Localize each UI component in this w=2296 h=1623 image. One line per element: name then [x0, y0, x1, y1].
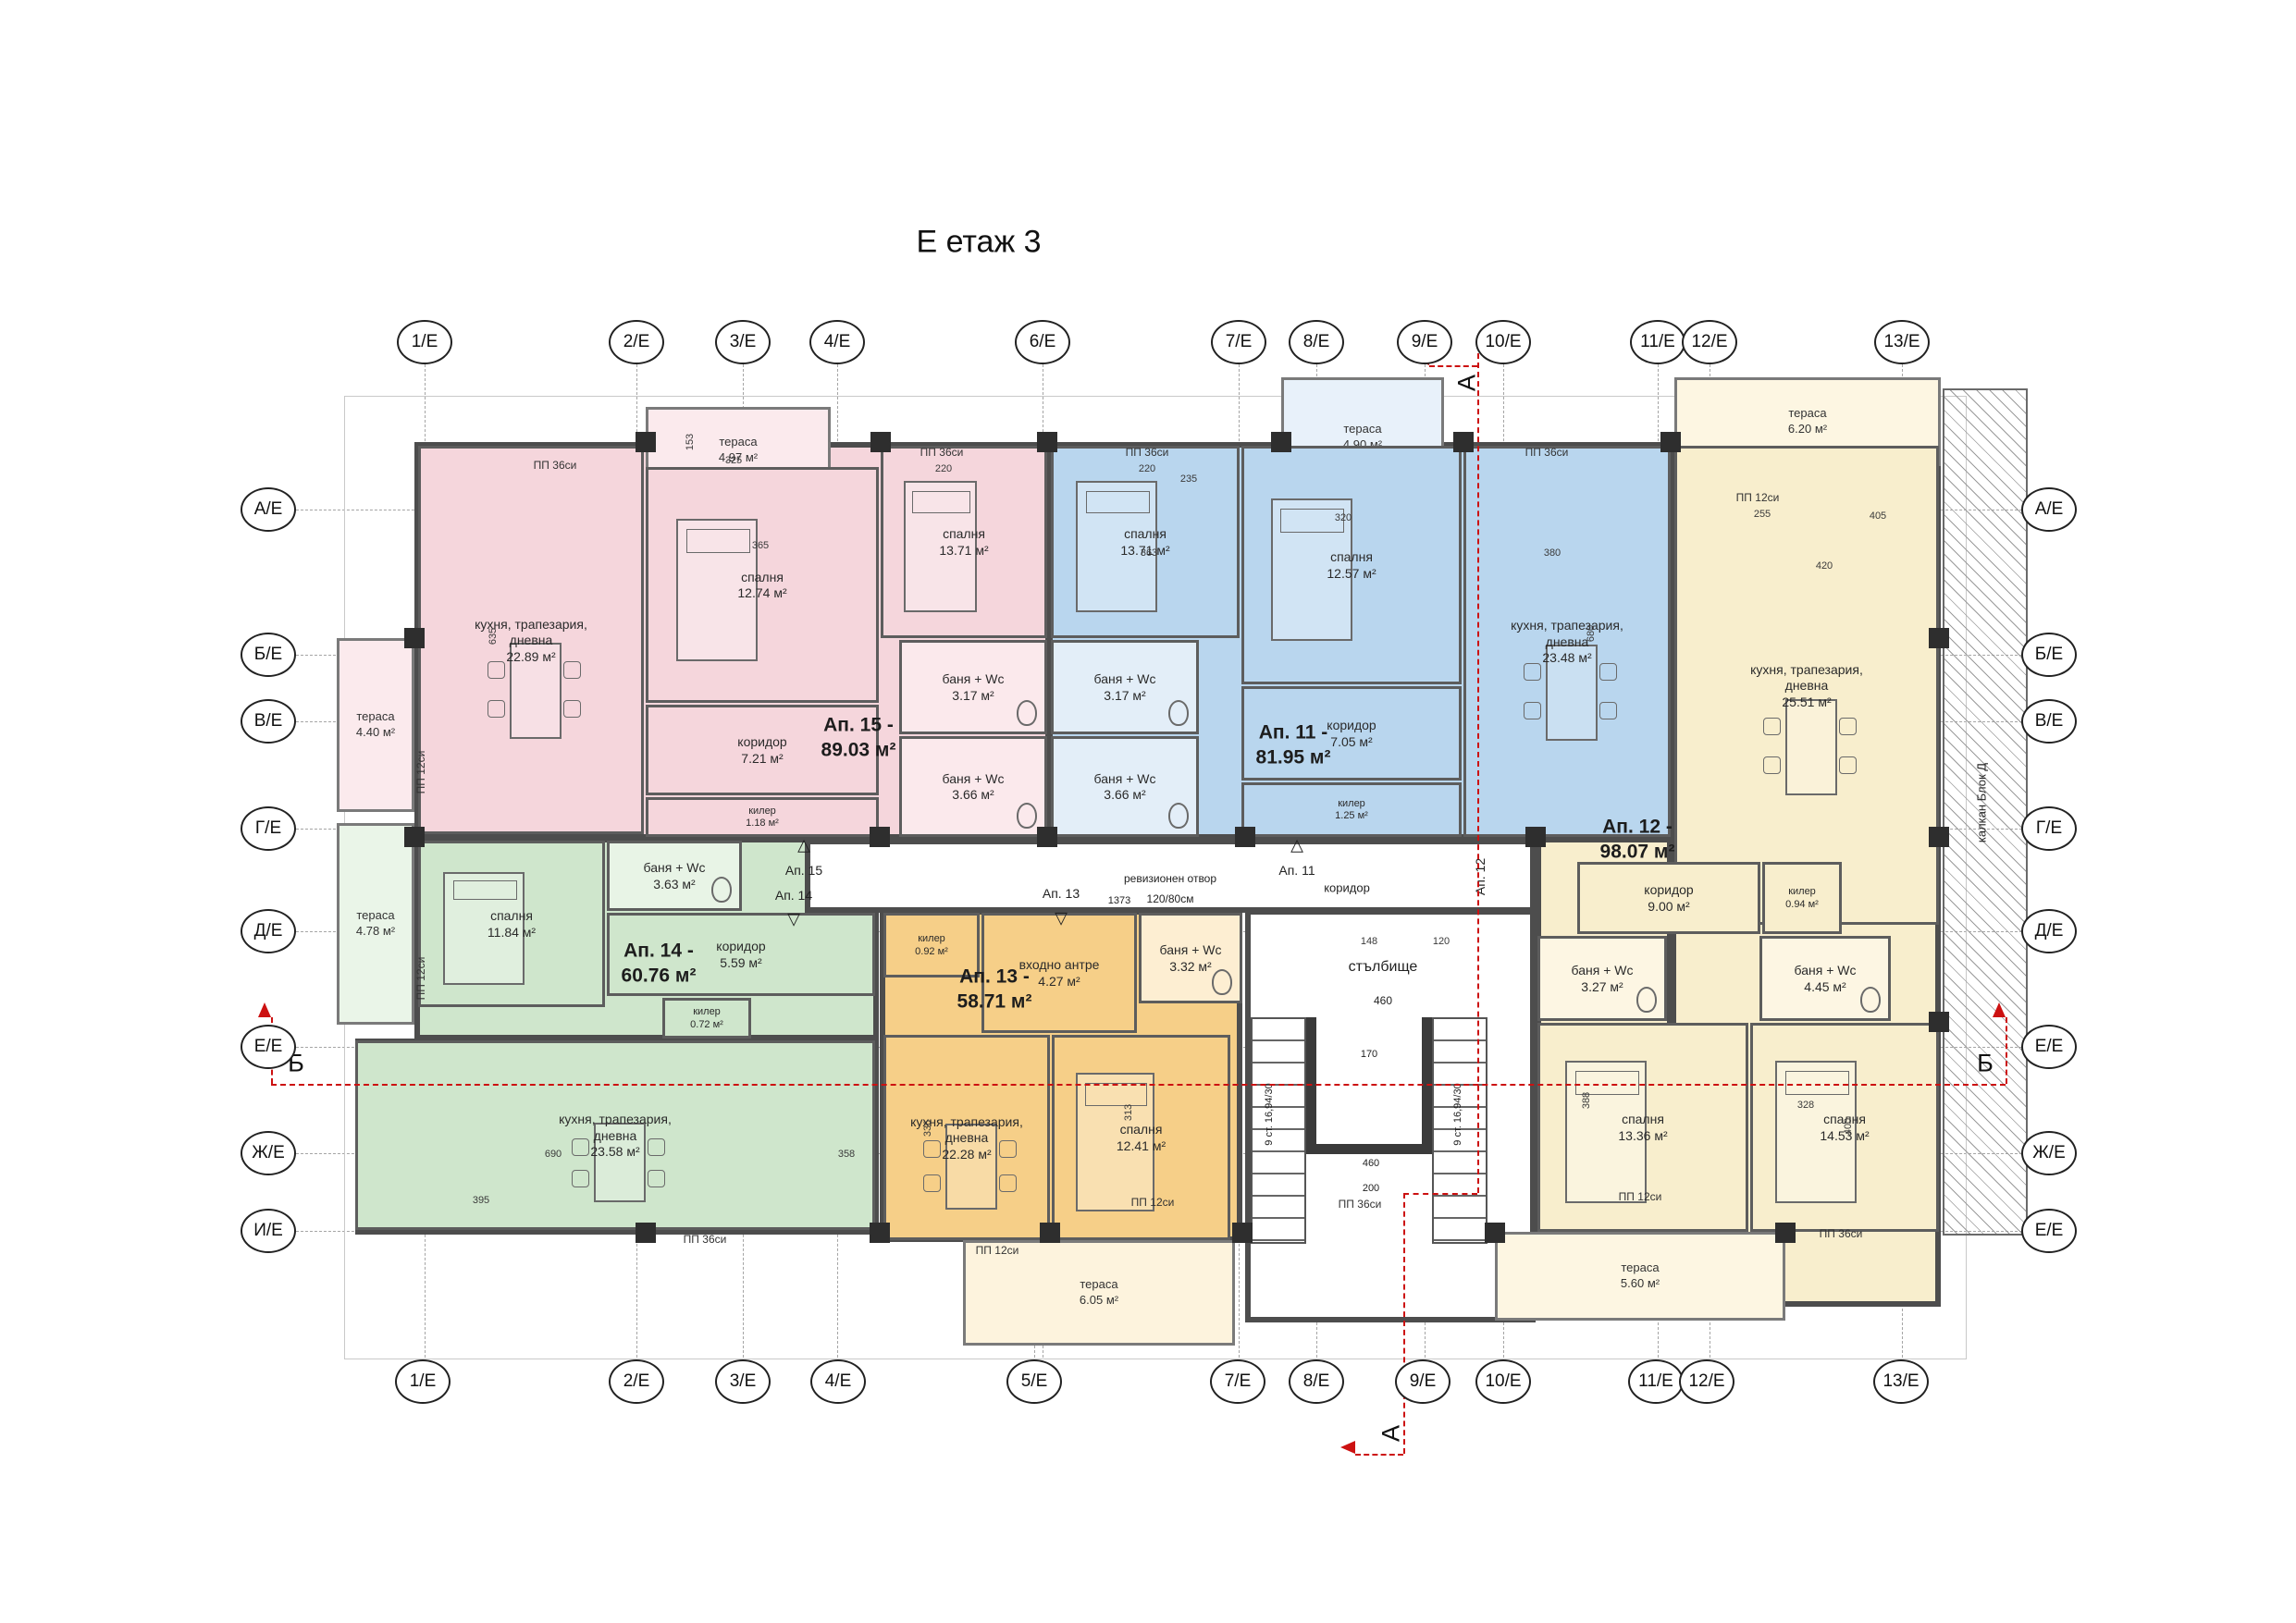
room-name: кухня, трапезария, дневна — [1750, 662, 1863, 695]
room-living: кухня, трапезария, дневна22.89 м² — [418, 446, 644, 834]
section-line — [1477, 353, 1479, 1193]
room-name: спалня — [1622, 1112, 1664, 1128]
axis-bubble-left: Г/Е — [241, 806, 296, 851]
axis-bubble-top: 13/Е — [1874, 320, 1930, 364]
dimension-text: 328 — [1797, 1100, 1814, 1111]
annotation-text: коридор — [1324, 881, 1370, 895]
apartment-number: Ап. 15 - — [821, 713, 896, 738]
annotation-text: Ап. 11 — [1278, 863, 1315, 878]
axis-bubble-bottom: 2/Е — [609, 1359, 664, 1404]
section-arrow — [1993, 1002, 2006, 1017]
dimension-text: 153 — [685, 434, 696, 450]
apartment-label-ap11: Ап. 11 -81.95 м² — [1256, 720, 1331, 771]
room-area: 13.36 м² — [1618, 1128, 1667, 1143]
room-name: баня + Wc — [943, 771, 1005, 788]
room-name: спалня — [943, 526, 985, 543]
axis-bubble-bottom: 11/Е — [1628, 1359, 1684, 1404]
apartment-area: 60.76 м² — [622, 964, 697, 989]
wall-column — [1660, 432, 1681, 452]
wall-column — [1037, 827, 1057, 847]
room-area: 3.17 м² — [952, 688, 994, 703]
room-living: кухня, трапезария, дневна22.28 м² — [883, 1035, 1050, 1240]
terrace-area: 6.05 м² — [1080, 1293, 1118, 1309]
dimension-text: 255 — [1754, 509, 1771, 520]
room-name: баня + Wc — [1094, 671, 1156, 688]
axis-bubble-left: Е/Е — [241, 1025, 296, 1069]
dimension-text: 680 — [1586, 625, 1597, 642]
section-line — [2006, 1017, 2007, 1084]
room-closet: килер1.25 м² — [1241, 782, 1462, 837]
wall-column — [1929, 827, 1949, 847]
window-mark-label: ПП 12си — [414, 957, 427, 1001]
dimension-text: 635 — [488, 628, 499, 645]
axis-bubble-top: 6/Е — [1015, 320, 1070, 364]
room-closet: килер0.94 м² — [1762, 862, 1842, 934]
apartment-label-ap13: Ап. 13 -58.71 м² — [957, 965, 1032, 1015]
room-bedroom: спалня13.71 м² — [881, 446, 1047, 638]
terrace-area: 4.40 м² — [356, 725, 395, 741]
room-name: спалня — [1124, 526, 1167, 543]
room-name: килер — [748, 805, 776, 818]
apartment-area: 89.03 м² — [821, 738, 896, 763]
room-living: кухня, трапезария, дневна23.58 м² — [355, 1040, 875, 1230]
room-name: килер — [1788, 886, 1816, 899]
room-area: 3.17 м² — [1104, 688, 1145, 703]
room-name: коридор — [1644, 882, 1693, 899]
room-name: баня + Wc — [1160, 942, 1222, 959]
section-line — [1403, 1193, 1405, 1454]
section-arrow — [258, 1002, 271, 1017]
dimension-text: 148 — [1361, 936, 1377, 947]
axis-bubble-bottom: 5/Е — [1006, 1359, 1062, 1404]
room-area: 3.63 м² — [653, 877, 695, 891]
room-name: килер — [693, 1006, 721, 1019]
annotation-text: стълбище — [1349, 959, 1418, 976]
section-letter: Б — [1977, 1050, 1994, 1078]
annotation-text: 1373 — [1108, 895, 1130, 906]
axis-bubble-bottom: 8/Е — [1289, 1359, 1344, 1404]
axis-bubble-left: Д/Е — [241, 909, 296, 953]
section-line — [271, 1084, 2006, 1086]
wall-column — [1271, 432, 1291, 452]
section-line — [1403, 1193, 1477, 1195]
axis-bubble-top: 4/Е — [809, 320, 865, 364]
page-title: Е етаж 3 — [916, 225, 1041, 261]
room-area: 11.84 м² — [488, 925, 536, 940]
wall-column — [404, 827, 425, 847]
terrace-label: тераса — [356, 709, 394, 725]
room-area: 1.25 м² — [1335, 810, 1368, 821]
wall-column — [1929, 628, 1949, 648]
annotation-text: 120/80см — [1147, 892, 1194, 905]
dimension-text: 235 — [1180, 473, 1197, 485]
annotation-text: 200 — [1363, 1183, 1379, 1194]
dimension-text: 388 — [1581, 1092, 1592, 1109]
room-bath: баня + Wc3.17 м² — [1051, 640, 1199, 734]
annotation-text: Ап. 15 — [785, 863, 822, 878]
axis-bubble-bottom: 1/Е — [395, 1359, 451, 1404]
terrace-area: 5.60 м² — [1621, 1276, 1660, 1292]
room-name: баня + Wc — [1094, 771, 1156, 788]
dimension-text: 220 — [935, 463, 952, 474]
room-bath: баня + Wc3.27 м² — [1537, 936, 1667, 1021]
dimension-text: 358 — [838, 1149, 855, 1160]
room-name: спалня — [741, 570, 784, 586]
room-bath: баня + Wc3.17 м² — [899, 640, 1047, 734]
apartment-area: 98.07 м² — [1600, 840, 1675, 865]
room-area: 3.66 м² — [952, 787, 994, 802]
dimension-text: 220 — [1139, 463, 1155, 474]
room-area: 1.18 м² — [746, 818, 779, 829]
window-mark-label: ПП 12си — [1619, 1190, 1662, 1203]
dimension-text: 395 — [473, 1195, 489, 1206]
apartment-label-ap12: Ап. 12 -98.07 м² — [1600, 815, 1675, 866]
room-bedroom: спалня12.41 м² — [1052, 1035, 1230, 1240]
terrace: тераса5.60 м² — [1495, 1232, 1785, 1321]
section-letter: А — [1377, 1425, 1406, 1442]
wall-column — [404, 628, 425, 648]
room-bedroom: спалня12.57 м² — [1241, 446, 1462, 684]
room-closet: килер0.72 м² — [662, 998, 751, 1039]
room-bath: баня + Wc3.32 м² — [1139, 913, 1242, 1003]
wall-column — [870, 1223, 890, 1243]
room-name: коридор — [737, 734, 786, 751]
annotation-text: △ — [797, 836, 810, 855]
room-name: баня + Wc — [644, 860, 706, 877]
axis-bubble-left: Ж/Е — [241, 1131, 296, 1175]
window-mark-label: ПП 12си — [1131, 1196, 1175, 1209]
room-area: 12.57 м² — [1327, 566, 1376, 581]
room-bedroom: спалня11.84 м² — [418, 841, 605, 1007]
dimension-text: 420 — [1816, 560, 1833, 572]
terrace-label: тераса — [1621, 1260, 1659, 1276]
window-mark-label: ПП 12си — [1736, 491, 1780, 504]
room-name: баня + Wc — [1795, 963, 1857, 979]
room-closet: килер1.18 м² — [646, 797, 879, 837]
window-mark-label: ПП 36си — [684, 1233, 727, 1246]
dimension-text: 363 — [1141, 547, 1157, 559]
room-hall: коридор9.00 м² — [1577, 862, 1760, 934]
axis-bubble-top: 8/Е — [1289, 320, 1344, 364]
apartment-area: 58.71 м² — [957, 990, 1032, 1014]
axis-bubble-bottom: 12/Е — [1679, 1359, 1734, 1404]
room-area: 3.66 м² — [1104, 787, 1145, 802]
axis-bubble-bottom: 3/Е — [715, 1359, 771, 1404]
terrace: тераса4.40 м² — [337, 638, 414, 812]
apartment-number: Ап. 14 - — [622, 939, 697, 964]
wall-column — [1775, 1223, 1796, 1243]
room-name: коридор — [1327, 718, 1376, 734]
axis-bubble-top: 7/Е — [1211, 320, 1266, 364]
dimension-text: 400 — [1843, 1118, 1854, 1135]
window-mark-label: ПП 36си — [1126, 446, 1169, 459]
dimension-text: 380 — [1544, 547, 1561, 559]
room-name: кухня, трапезария, дневна — [1511, 618, 1623, 650]
apartment-label-ap14: Ап. 14 -60.76 м² — [622, 939, 697, 990]
room-name: баня + Wc — [1572, 963, 1634, 979]
room-area: 12.74 м² — [737, 585, 786, 600]
terrace-label: тераса — [719, 435, 757, 450]
wall-column — [870, 432, 891, 452]
room-name: коридор — [716, 939, 765, 955]
room-area: 7.05 м² — [1330, 734, 1372, 749]
axis-bubble-top: 1/Е — [397, 320, 452, 364]
annotation-text: 9 ст. 16,94/30 — [1264, 1083, 1275, 1145]
room-living: кухня, трапезария, дневна23.48 м² — [1463, 446, 1671, 837]
annotation-text: Ап. 13 — [1043, 886, 1080, 901]
room-area: 23.48 м² — [1542, 650, 1591, 665]
room-name: килер — [918, 933, 945, 946]
section-letter: А — [1453, 375, 1482, 391]
axis-bubble-left: В/Е — [241, 699, 296, 744]
room-area: 0.94 м² — [1785, 899, 1819, 910]
axis-bubble-right: В/Е — [2021, 699, 2077, 744]
window-mark-label: ПП 36си — [1820, 1227, 1863, 1240]
stair-shaft — [1306, 1017, 1432, 1154]
terrace: тераса4.78 м² — [337, 823, 414, 1025]
room-area: 22.89 м² — [506, 649, 555, 664]
wall-column — [1525, 827, 1546, 847]
room-name: баня + Wc — [943, 671, 1005, 688]
apartment-number: Ап. 13 - — [957, 965, 1032, 990]
room-area: 3.32 м² — [1169, 959, 1211, 974]
dimension-text: 365 — [752, 540, 769, 551]
axis-bubble-right: Д/Е — [2021, 909, 2077, 953]
terrace-label: тераса — [1080, 1277, 1117, 1293]
room-name: спалня — [1120, 1122, 1163, 1138]
room-area: 7.21 м² — [741, 751, 783, 766]
annotation-text: 9 ст. 16,94/30 — [1452, 1083, 1463, 1145]
room-living: кухня, трапезария, дневна25.51 м² — [1674, 446, 1939, 925]
dimension-text: 120 — [1433, 936, 1450, 947]
room-bath: баня + Wc3.63 м² — [607, 841, 742, 911]
terrace-label: тераса — [356, 908, 394, 924]
room-area: 13.71 м² — [939, 543, 988, 558]
wall-column — [1929, 1012, 1949, 1032]
axis-bubble-top: 10/Е — [1475, 320, 1531, 364]
terrace-label: тераса — [1788, 406, 1826, 422]
window-mark-label: ПП 36си — [1525, 446, 1569, 459]
terrace-area: 6.20 м² — [1788, 422, 1827, 437]
axis-bubble-bottom: 9/Е — [1395, 1359, 1450, 1404]
axis-bubble-top: 3/Е — [715, 320, 771, 364]
section-arrow — [1340, 1441, 1355, 1454]
room-bath: баня + Wc3.66 м² — [899, 736, 1047, 837]
axis-bubble-right: Ж/Е — [2021, 1131, 2077, 1175]
annotation-text: 460 — [1374, 994, 1392, 1007]
axis-bubble-right: Е/Е — [2021, 1209, 2077, 1253]
terrace-area: 4.78 м² — [356, 924, 395, 940]
dimension-text: 325 — [725, 455, 742, 466]
room-bedroom: спалня12.74 м² — [646, 467, 879, 703]
section-line — [1355, 1454, 1403, 1456]
annotation-text: 460 — [1363, 1158, 1379, 1169]
room-bath: баня + Wc4.45 м² — [1759, 936, 1891, 1021]
dimension-text: 320 — [1335, 512, 1352, 523]
window-mark-label: ПП 12си — [976, 1244, 1019, 1257]
axis-bubble-bottom: 13/Е — [1873, 1359, 1929, 1404]
room-area: 23.58 м² — [590, 1144, 639, 1159]
section-line — [1429, 365, 1477, 367]
axis-bubble-left: И/Е — [241, 1209, 296, 1253]
room-area: 5.59 м² — [720, 955, 761, 970]
wall-column — [1235, 827, 1255, 847]
apartment-number: Ап. 11 - — [1256, 720, 1331, 745]
annotation-text: ▽ — [1055, 909, 1068, 928]
annotation-text: ▽ — [787, 910, 800, 929]
room-area: 3.27 м² — [1581, 979, 1623, 994]
axis-bubble-left: А/Е — [241, 487, 296, 532]
axis-bubble-bottom: 7/Е — [1210, 1359, 1265, 1404]
apartment-number: Ап. 12 - — [1600, 815, 1675, 840]
room-bath: баня + Wc3.66 м² — [1051, 736, 1199, 837]
window-mark-label: ПП 12си — [414, 751, 427, 794]
room-area: 22.28 м² — [942, 1147, 991, 1162]
axis-bubble-bottom: 10/Е — [1475, 1359, 1531, 1404]
apartment-area: 81.95 м² — [1256, 745, 1331, 770]
terrace-label: тераса — [1343, 422, 1381, 437]
floorplan-canvas: Е етаж 3 тераса4.97 м²тераса4.90 м²терас… — [0, 0, 2296, 1623]
annotation-text: Ап. 12 — [1473, 858, 1487, 895]
apartment-label-ap15: Ап. 15 -89.03 м² — [821, 713, 896, 764]
annotation-text: Ап. 14 — [775, 888, 812, 903]
axis-bubble-bottom: 4/Е — [810, 1359, 866, 1404]
room-bedroom: спалня13.71 м² — [1051, 446, 1240, 638]
room-name: спалня — [490, 908, 533, 925]
room-area: 9.00 м² — [1648, 899, 1689, 914]
annotation-text: калкан Блок Д — [1975, 763, 1989, 842]
annotation-text: 170 — [1361, 1049, 1377, 1060]
axis-bubble-right: Г/Е — [2021, 806, 2077, 851]
annotation-text: ревизионен отвор — [1124, 872, 1216, 885]
room-area: 4.45 м² — [1804, 979, 1845, 994]
wall-column — [1453, 432, 1474, 452]
room-name: килер — [1338, 798, 1365, 811]
window-mark-label: ПП 36си — [1339, 1198, 1382, 1211]
room-area: 25.51 м² — [1782, 695, 1831, 709]
wall-column — [1037, 432, 1057, 452]
wall-column — [636, 1223, 656, 1243]
axis-bubble-top: 11/Е — [1630, 320, 1685, 364]
annotation-text: △ — [1290, 836, 1303, 855]
axis-bubble-top: 12/Е — [1682, 320, 1737, 364]
axis-bubble-right: Б/Е — [2021, 633, 2077, 677]
wall-column — [636, 432, 656, 452]
wall-column — [870, 827, 890, 847]
room-area: 4.27 м² — [1038, 974, 1080, 989]
axis-bubble-left: Б/Е — [241, 633, 296, 677]
dimension-text: 336 — [922, 1120, 933, 1137]
wall-column — [1485, 1223, 1505, 1243]
room-area: 0.92 м² — [915, 946, 948, 957]
wall-column — [1232, 1223, 1253, 1243]
axis-bubble-right: Е/Е — [2021, 1025, 2077, 1069]
wall-column — [1040, 1223, 1060, 1243]
dimension-text: 313 — [1123, 1104, 1134, 1121]
dimension-text: 690 — [545, 1149, 562, 1160]
window-mark-label: ПП 36си — [534, 459, 577, 472]
axis-bubble-top: 9/Е — [1397, 320, 1452, 364]
stair-flight — [1251, 1017, 1306, 1244]
window-mark-label: ПП 36си — [920, 446, 964, 459]
axis-bubble-right: А/Е — [2021, 487, 2077, 532]
room-area: 0.72 м² — [690, 1019, 723, 1030]
room-area: 12.41 м² — [1117, 1138, 1166, 1153]
dimension-text: 405 — [1870, 510, 1886, 522]
axis-bubble-top: 2/Е — [609, 320, 664, 364]
room-name: спалня — [1330, 549, 1373, 566]
room-name: кухня, трапезария, дневна — [559, 1112, 672, 1144]
